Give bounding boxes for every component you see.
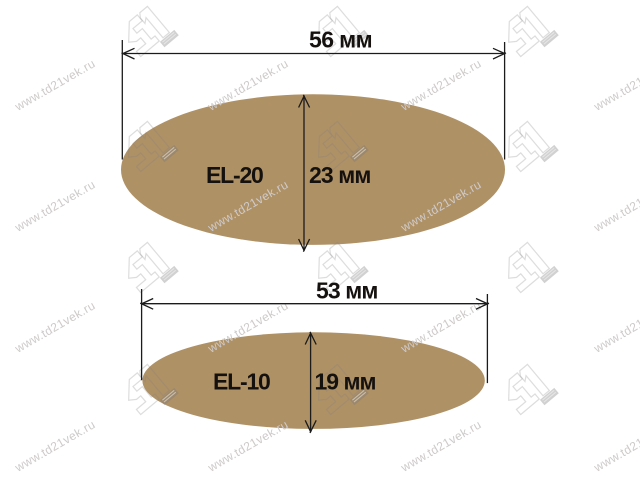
- svg-text:56 мм: 56 мм: [309, 27, 372, 53]
- svg-text:53 мм: 53 мм: [316, 278, 378, 304]
- svg-text:23 мм: 23 мм: [309, 162, 371, 188]
- svg-text:EL-20: EL-20: [206, 162, 263, 188]
- svg-text:19 мм: 19 мм: [315, 369, 376, 395]
- svg-text:EL-10: EL-10: [213, 369, 270, 395]
